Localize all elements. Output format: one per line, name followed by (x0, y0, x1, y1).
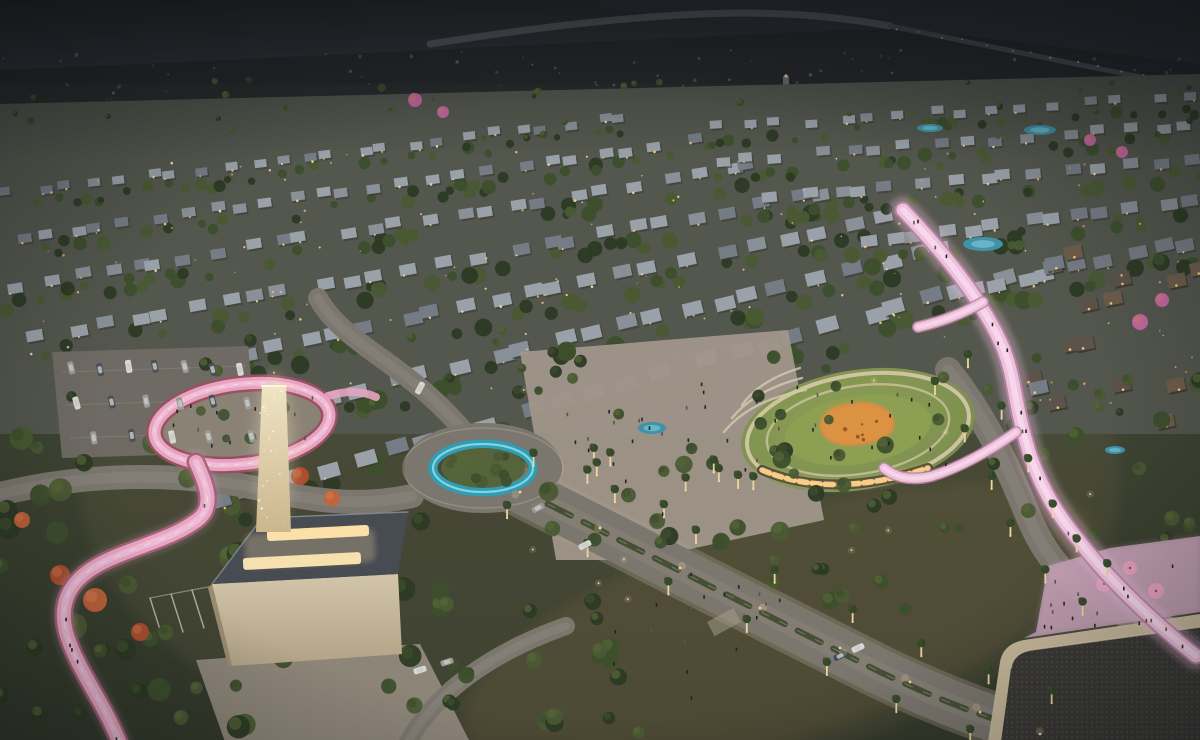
scene-canvas (0, 0, 1200, 740)
aerial-render-image (0, 0, 1200, 740)
vignette-layer (0, 0, 1200, 740)
